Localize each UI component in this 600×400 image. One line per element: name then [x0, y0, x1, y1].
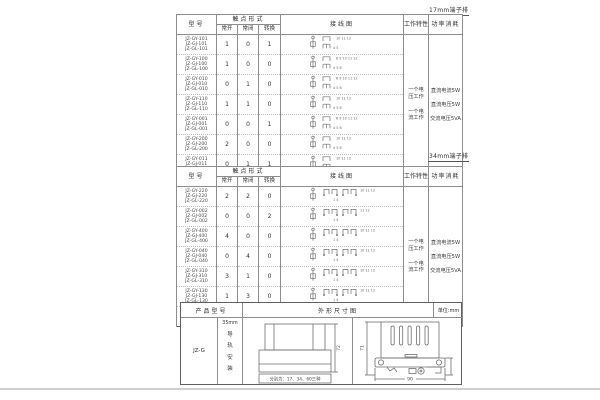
- co-contact-count: 0: [259, 267, 281, 287]
- no-contact-count: 2: [217, 187, 238, 207]
- col-header-model: 型号: [177, 15, 217, 35]
- no-contact-count: 1: [217, 55, 238, 75]
- terminal-numbers-bottom: 4 5 6: [333, 146, 342, 150]
- col-header-no: 常开: [217, 177, 238, 187]
- wiring-schematic-icon: 8 9 10 11 124 5 6: [283, 115, 401, 130]
- front-caption: 分别为：17、34、60三种: [270, 376, 321, 383]
- terminal-numbers-top: 10 11 12: [360, 288, 375, 292]
- working-characteristic: 一个电压工作: [408, 87, 425, 101]
- terminal-numbers-top: 10 11 12: [336, 136, 351, 140]
- terminal-numbers-top: 10 11 12: [336, 156, 351, 160]
- table17-body: JZ-GY-101JZ-GJ-101JZ-GL-10110110 11 124 …: [177, 35, 463, 175]
- nc-contact-count: 0: [238, 135, 259, 155]
- wiring-schematic-icon: 10 11 121 4: [283, 267, 401, 282]
- col-header-nc: 常闭: [238, 177, 259, 187]
- col-header-characteristics: 工作特性: [404, 167, 429, 187]
- wiring-schematic-icon: 10 11 124 5: [283, 35, 401, 50]
- power-consumption-line: 直流电流5W: [429, 239, 462, 246]
- wiring-schematic-icon: 10 11 121 4: [283, 247, 401, 262]
- col-header-wiring: 接线图: [281, 15, 404, 35]
- co-contact-count: 0: [259, 247, 281, 267]
- terminal-numbers-bottom: 4 5 6: [333, 106, 342, 110]
- nc-contact-count: 0: [238, 207, 259, 227]
- terminal-numbers-top: 10 11 12: [336, 36, 351, 40]
- page-bottom-rule: [0, 388, 600, 390]
- terminal-numbers-top: 8 9 10 11 12: [336, 76, 358, 80]
- wiring-diagram-cell: 11 121 4: [281, 207, 404, 227]
- co-contact-count: 1: [259, 115, 281, 135]
- power-consumption-line: 直流电流5W: [429, 87, 462, 94]
- col-header-co: 转换: [259, 177, 281, 187]
- col-header-nc: 常闭: [238, 25, 259, 35]
- no-contact-count: 0: [217, 247, 238, 267]
- col-header-co: 转换: [259, 25, 281, 35]
- model-numbers: JZ-GY-310JZ-GJ-310JZ-GL-310: [177, 267, 217, 287]
- wiring-diagram-cell: 10 11 124 5: [281, 35, 404, 55]
- co-contact-count: 0: [259, 187, 281, 207]
- working-characteristic: 一个电流工作: [408, 261, 425, 275]
- model-numbers: JZ-GY-100JZ-GJ-100JZ-GL-100: [177, 55, 217, 75]
- col-header-model: 型号: [177, 167, 217, 187]
- nc-contact-count: 1: [238, 75, 259, 95]
- wiring-diagram-cell: 10 11 124 5 6: [281, 95, 404, 115]
- nc-contact-count: 0: [238, 227, 259, 247]
- side-view-drawing: 71 90: [353, 318, 463, 384]
- terminal-numbers-top: 8 9 10 11 12: [336, 116, 358, 120]
- terminal-strip-label-34mm: 34mm端子排: [428, 151, 469, 162]
- co-contact-count: 0: [259, 135, 281, 155]
- col-header-characteristics: 工作特性: [404, 15, 429, 35]
- nc-contact-count: 0: [238, 55, 259, 75]
- terminal-numbers-top: 10 11 12: [336, 96, 351, 100]
- mount-vertical-char: 装: [218, 364, 242, 372]
- terminal-numbers-top: 10 11 12: [360, 268, 375, 272]
- model-numbers: JZ-GY-040JZ-GJ-040JZ-GL-040: [177, 247, 217, 267]
- terminal-numbers-top: 8 9 10 11 12: [336, 56, 358, 60]
- front-view-drawing: 72 分别为：17、34、60三种: [243, 318, 353, 384]
- dimension-table: 产品型号 外形尺寸图 单位:mm JZ-G 35mm 导轨安装 72 分别为：1…: [180, 302, 462, 385]
- terminal-numbers-bottom: 1 4: [333, 238, 338, 242]
- co-contact-count: 0: [259, 227, 281, 247]
- col-header-unit: 单位:mm: [433, 303, 463, 318]
- working-characteristic: 一个电流工作: [408, 109, 425, 123]
- mount-vertical-text: 导轨安装: [218, 330, 242, 373]
- power-consumption-line: 直流电压5W: [429, 101, 462, 108]
- col-header-contact-form: 触点形式: [217, 15, 281, 25]
- working-characteristic: 一个电压工作: [408, 239, 425, 253]
- model-numbers: JZ-GY-101JZ-GJ-101JZ-GL-101: [177, 35, 217, 55]
- terminal-numbers-top: 11 12: [360, 208, 370, 212]
- mount-rail-size: 35mm: [218, 321, 242, 326]
- wiring-schematic-icon: 10 11 121 4: [283, 187, 401, 202]
- wiring-schematic-icon: 10 11 121 4: [283, 227, 401, 242]
- terminal-numbers-bottom: 4 5 6: [333, 86, 342, 90]
- wiring-diagram-cell: 10 11 121 4: [281, 187, 404, 207]
- mount-vertical-char: 导: [218, 330, 242, 338]
- mount-vertical-char: 安: [218, 353, 242, 361]
- wiring-diagram-cell: 8 9 10 11 124 5 6: [281, 75, 404, 95]
- front-view-svg: 72 分别为：17、34、60三种: [243, 318, 353, 384]
- no-contact-count: 1: [217, 95, 238, 115]
- terminal-numbers-bottom: 4 5 6: [333, 66, 342, 70]
- terminal-numbers-top: 10 11 12: [360, 248, 375, 252]
- col-header-outline-drawing: 外形尺寸图: [243, 303, 433, 318]
- no-contact-count: 4: [217, 227, 238, 247]
- no-contact-count: 2: [217, 135, 238, 155]
- col-header-power: 功率消耗: [429, 167, 463, 187]
- mount-vertical-char: 轨: [218, 341, 242, 349]
- power-consumption-line: 直流电压5W: [429, 253, 462, 260]
- nc-contact-count: 4: [238, 247, 259, 267]
- model-numbers: JZ-GY-002JZ-GJ-002JZ-GL-002: [177, 207, 217, 227]
- wiring-schematic-icon: 10 11 121 4: [283, 287, 401, 302]
- terminal-numbers-bottom: 4 5 6: [333, 126, 342, 130]
- mounting-info: 35mm 导轨安装: [218, 318, 243, 384]
- co-contact-count: 2: [259, 207, 281, 227]
- working-characteristics-cell: 一个电压工作一个电流工作: [404, 35, 429, 175]
- table-row: JZ-GY-101JZ-GJ-101JZ-GL-10110110 11 124 …: [177, 35, 463, 55]
- col-header-product-model: 产品型号: [181, 303, 243, 318]
- spec-table-17mm: 型号 触点形式 接线图 工作特性 功率消耗 常开 常闭 转换 JZ-GY-101…: [176, 14, 463, 175]
- wiring-diagram-cell: 8 9 10 11 124 5 6: [281, 55, 404, 75]
- wiring-diagram-cell: 8 9 10 11 124 5 6: [281, 115, 404, 135]
- model-numbers: JZ-GY-200JZ-GJ-200JZ-GL-200: [177, 135, 217, 155]
- wiring-schematic-icon: 8 9 10 11 124 5 6: [283, 55, 401, 70]
- wiring-schematic-icon: 8 9 10 11 124 5 6: [283, 75, 401, 90]
- col-header-power: 功率消耗: [429, 15, 463, 35]
- model-numbers: JZ-GY-400JZ-GJ-400JZ-GL-400: [177, 227, 217, 247]
- terminal-numbers-bottom: 1 4: [333, 278, 338, 282]
- wiring-schematic-icon: 10 11 124 5 6: [283, 95, 401, 110]
- wiring-diagram-cell: 10 11 121 4: [281, 267, 404, 287]
- model-numbers: JZ-GY-001JZ-GJ-001JZ-GL-001: [177, 115, 217, 135]
- no-contact-count: 0: [217, 115, 238, 135]
- co-contact-count: 0: [259, 55, 281, 75]
- terminal-numbers-top: 10 11 12: [360, 188, 375, 192]
- col-header-wiring: 接线图: [281, 167, 404, 187]
- no-contact-count: 0: [217, 207, 238, 227]
- nc-contact-count: 1: [238, 267, 259, 287]
- col-header-contact-form: 触点形式: [217, 167, 281, 177]
- wiring-diagram-cell: 10 11 124 5 6: [281, 135, 404, 155]
- table-row: JZ-GY-220JZ-GJ-220JZ-GL-22022010 11 121 …: [177, 187, 463, 207]
- model-numbers: JZ-GY-110JZ-GJ-110JZ-GL-110: [177, 95, 217, 115]
- wiring-diagram-cell: 10 11 121 4: [281, 247, 404, 267]
- co-contact-count: 0: [259, 95, 281, 115]
- terminal-numbers-top: 10 11 12: [360, 228, 375, 232]
- wiring-schematic-icon: 10 11 124 5 6: [283, 135, 401, 150]
- power-consumption-line: 交流电压5VA: [429, 115, 462, 122]
- nc-contact-count: 1: [238, 95, 259, 115]
- terminal-numbers-bottom: 1 4: [333, 198, 338, 202]
- nc-contact-count: 2: [238, 187, 259, 207]
- model-numbers: JZ-GY-010JZ-GJ-010JZ-GL-010: [177, 75, 217, 95]
- product-model-value: JZ-G: [181, 318, 218, 384]
- terminal-numbers-bottom: 4 5: [333, 46, 338, 50]
- nc-contact-count: 0: [238, 115, 259, 135]
- nc-contact-count: 0: [238, 35, 259, 55]
- side-height-dim: 71: [360, 345, 366, 351]
- power-consumption-line: 交流电压5VA: [429, 267, 462, 274]
- no-contact-count: 3: [217, 267, 238, 287]
- wiring-schematic-icon: 11 121 4: [283, 207, 401, 222]
- co-contact-count: 1: [259, 35, 281, 55]
- side-view-svg: 71 90: [353, 318, 463, 384]
- wiring-diagram-cell: 10 11 121 4: [281, 227, 404, 247]
- no-contact-count: 0: [217, 75, 238, 95]
- side-width-dim: 90: [407, 377, 413, 383]
- co-contact-count: 0: [259, 75, 281, 95]
- terminal-numbers-bottom: 1 4: [333, 258, 338, 262]
- no-contact-count: 1: [217, 35, 238, 55]
- col-header-no: 常开: [217, 25, 238, 35]
- front-height-dim: 72: [336, 345, 342, 351]
- model-numbers: JZ-GY-220JZ-GJ-220JZ-GL-220: [177, 187, 217, 207]
- terminal-numbers-bottom: 1 4: [333, 218, 338, 222]
